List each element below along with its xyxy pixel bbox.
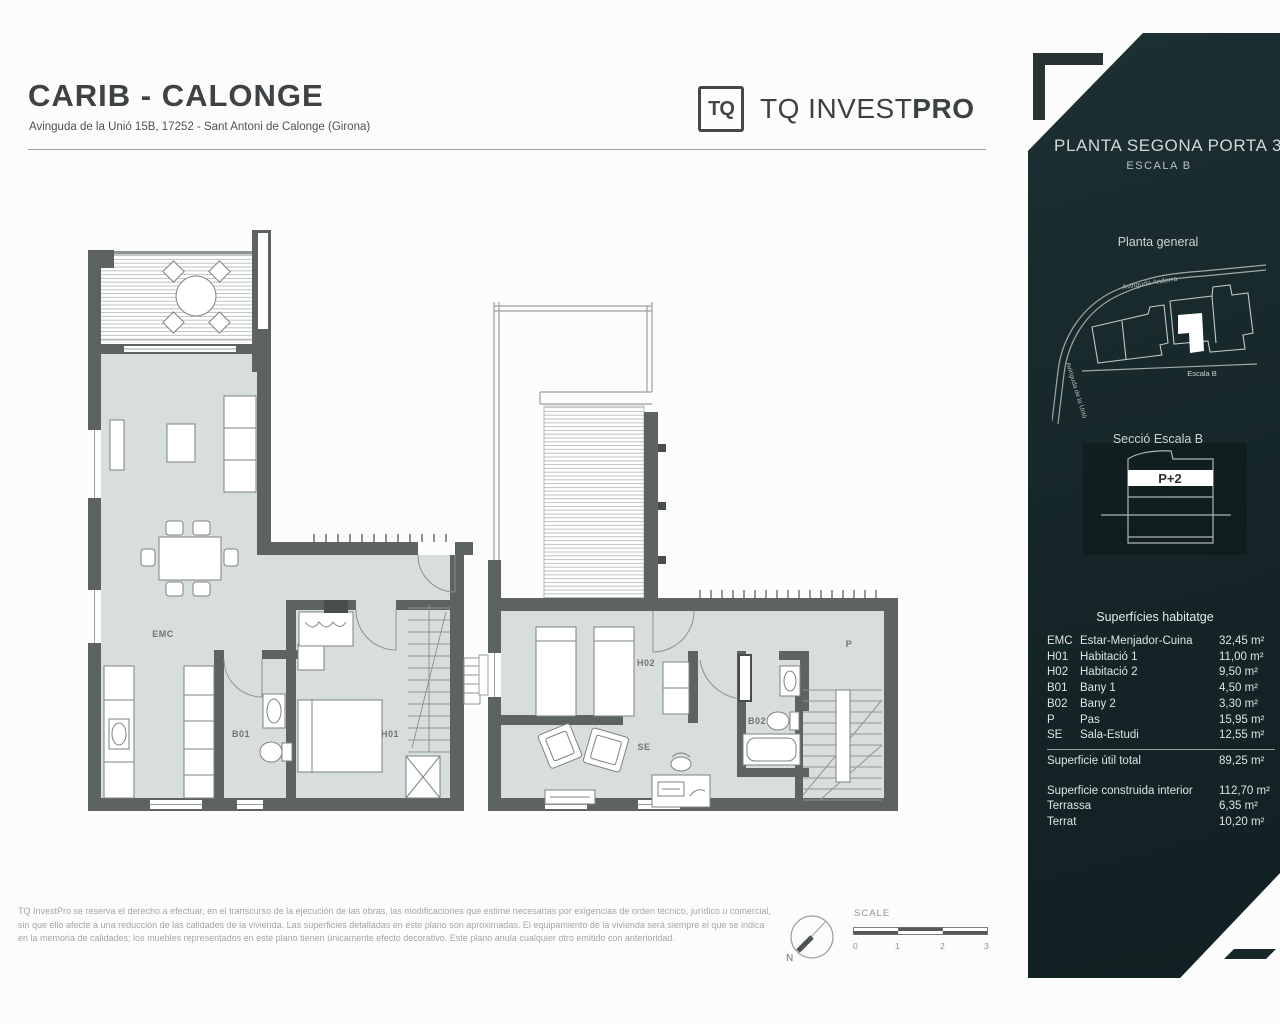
room-label-b02: B02 [748,716,766,726]
room-label-emc: EMC [152,629,174,639]
surfaces-table: EMCEstar-Menjador-Cuina32,45 m² H01Habit… [1047,634,1275,831]
table-row: EMCEstar-Menjador-Cuina32,45 m² [1047,634,1275,650]
table-divider [1047,749,1275,750]
brand-logo-text: TQ INVESTPRO [760,93,974,125]
brand-name-bold: PRO [912,93,974,124]
site-plan-caption: Escala B [1187,369,1217,378]
site-plan-label: Planta general [1068,235,1248,249]
building-section: P+2 [1083,443,1247,555]
table-row: B01Bany 14,50 m² [1047,681,1275,697]
total-row: Superficie útil total89,25 m² [1047,754,1275,770]
table-row: H01Habitació 111,00 m² [1047,650,1275,666]
table-row: B02Bany 23,30 m² [1047,697,1275,713]
dimension-ticks-upper [700,590,876,598]
streets [1052,265,1266,424]
floor-plans-drawing: EMC B01 H01 [80,228,964,843]
room-label-h01: H01 [381,729,399,739]
table-row: SESala-Estudi12,55 m² [1047,728,1275,744]
floor-plan-main-level: EMC B01 H01 [88,230,480,811]
header-rule [28,149,986,150]
highlighted-unit [1178,313,1204,353]
scale-tick: 1 [895,941,900,951]
brand-name: TQ INVEST [760,93,912,124]
table-row: H02Habitació 29,50 m² [1047,665,1275,681]
scale-label: SCALE [854,908,890,919]
extra-surfaces: Superficie construida interior112,70 m² … [1047,784,1275,831]
brand-logo-icon: TQ [698,86,744,132]
table-row: Terrassa6,35 m² [1047,799,1275,815]
bottom-stripe [1224,949,1276,959]
disclaimer-line: en la memoria de calidades; los muebles … [18,932,771,946]
dimension-ticks [314,534,446,542]
room-label-p: P [846,639,853,649]
roof-terrace-decking [544,406,644,598]
table-row: Superficie construida interior112,70 m² [1047,784,1275,800]
table-row: Terrat10,20 m² [1047,815,1275,831]
north-compass-icon: N [783,908,841,966]
compass-label: N [786,953,793,964]
page-title: CARIB - CALONGE [28,78,324,114]
corner-mark-vertical [1033,53,1045,120]
room-label-b01: B01 [232,729,250,739]
info-panel: PLANTA SEGONA PORTA 3 ESCALA B Planta ge… [1028,33,1280,978]
disclaimer-line: sin que ello afecte a una reducción de l… [18,919,771,933]
disclaimer: TQ InvestPro se reserva el derecho a efe… [18,905,771,946]
disclaimer-line: TQ InvestPro se reserva el derecho a efe… [18,905,771,919]
street-label-left: Avinguda de la Unió [1064,362,1088,420]
table-row: PPas15,95 m² [1047,713,1275,729]
floor-plan-upper-level: H02 SE B02 P [479,302,898,811]
plan-sheet: CARIB - CALONGE Avinguda de la Unió 15B,… [0,0,1280,1024]
scale-tick: 0 [853,941,858,951]
page-subtitle: Avinguda de la Unió 15B, 17252 - Sant An… [29,121,370,133]
scale-bar: SCALE 0 1 2 3 [853,903,995,955]
brand-logo: TQ TQ INVESTPRO [698,84,998,136]
panel-title: PLANTA SEGONA PORTA 3 [1054,136,1280,156]
site-plan-map: Avinguda Andorra Avinguda de la Unió Esc… [1052,251,1272,427]
surfaces-heading: Superfícies habitatge [1048,610,1262,624]
scale-tick: 3 [984,941,989,951]
panel-subtitle: ESCALA B [1054,160,1264,172]
scale-tick: 2 [940,941,945,951]
room-label-se: SE [637,742,650,752]
wall-hatch-block [464,658,480,704]
room-label-h02: H02 [637,658,655,668]
floor-tag: P+2 [1158,471,1182,486]
